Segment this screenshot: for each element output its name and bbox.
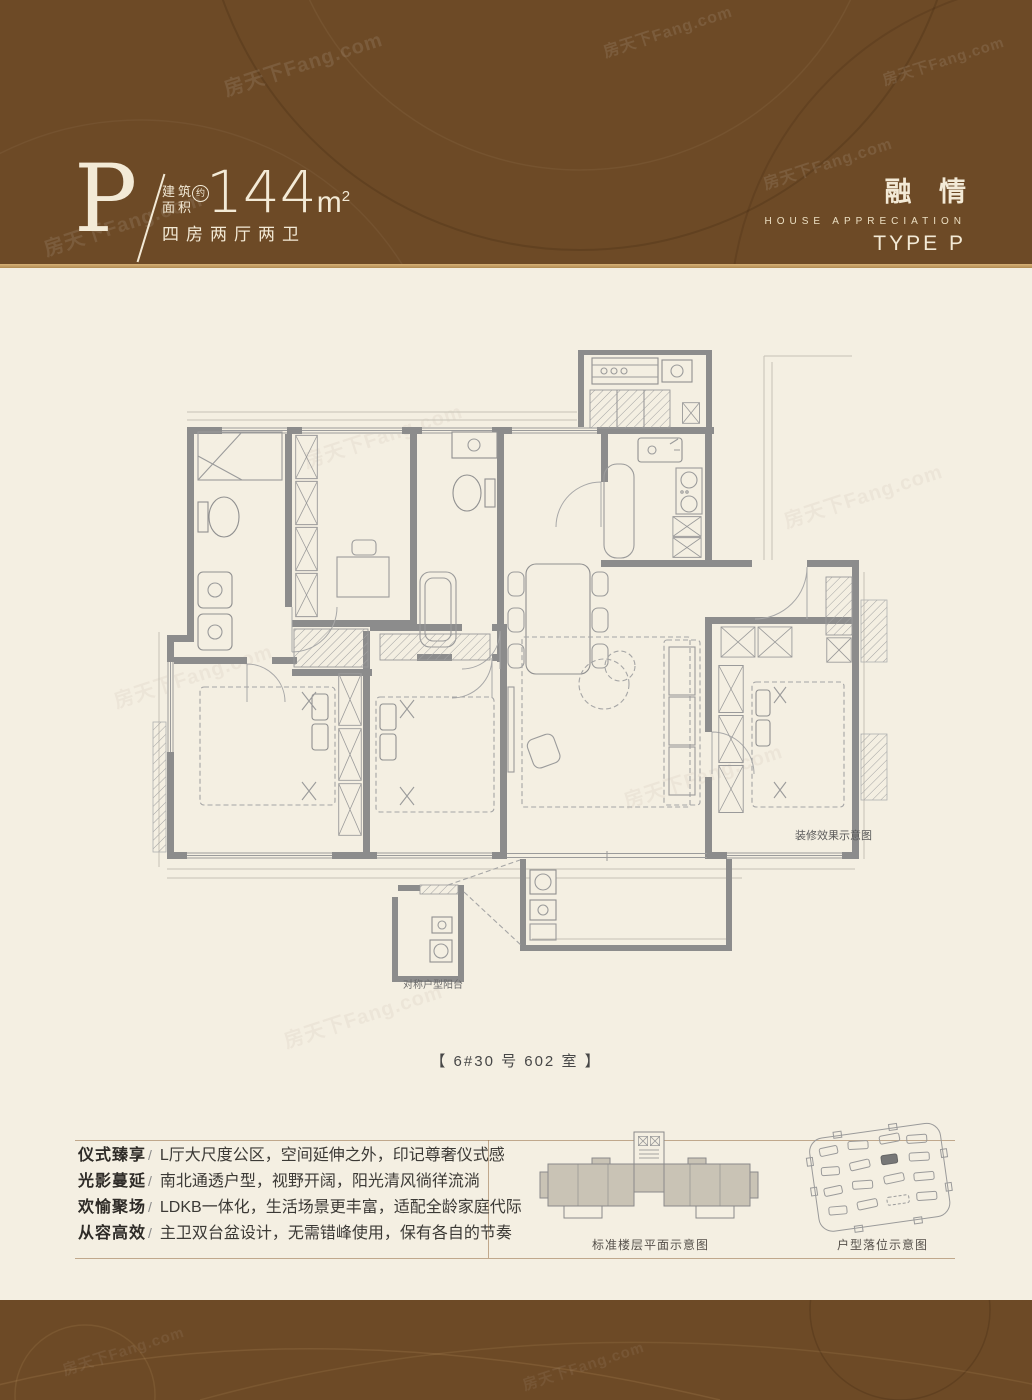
type-label: TYPE P — [764, 232, 966, 256]
feature-row: 仪式臻享 / L厅大尺度公区，空间延伸之外，印记尊奢仪式感 — [78, 1141, 478, 1167]
area-unit-sup: 2 — [342, 188, 350, 205]
room-layout-text: 四房两厅两卫 — [162, 220, 306, 245]
unit-type-letter: P — [74, 150, 137, 250]
floor-plan: .w{fill:#8c8c8c;} .tl{stroke:#9b9b9b;fil… — [152, 332, 902, 1012]
footer-band: 房天下Fang.com 房天下Fang.com 本宣传资料为要约邀请，不作为要约… — [0, 1300, 1032, 1400]
brand-name-en: HOUSE APPRECIATION — [764, 216, 966, 227]
area-value-row: 144m2 — [206, 163, 350, 221]
laundry-area — [590, 358, 699, 428]
walls — [167, 350, 859, 859]
study-bedroom — [296, 435, 389, 616]
header-band: 房天下Fang.com 房天下Fang.com 房天下Fang.com 房天下F… — [0, 0, 1032, 264]
feature-desc: 南北通透户型，视野开阔，阳光清风徜徉流淌 — [160, 1167, 480, 1191]
feature-separator: / — [148, 1147, 152, 1163]
kitchen — [604, 438, 702, 558]
area-label-line2: 面积 — [162, 200, 194, 216]
area-value: 144 — [206, 158, 317, 226]
feature-label: 仪式臻享 — [78, 1141, 146, 1165]
gold-divider — [0, 264, 1032, 268]
master-bathroom — [198, 432, 282, 650]
poster-page: 房天下Fang.com 房天下Fang.com 房天下Fang.com 房天下F… — [0, 0, 1032, 1400]
master-bedroom — [719, 627, 844, 813]
floor-plan-drawing: .w{fill:#8c8c8c;} .tl{stroke:#9b9b9b;fil… — [152, 332, 902, 1012]
balcony-note: 对称户型阳台 — [368, 976, 498, 991]
floor-diagram-caption: 标准楼层平面示意图 — [538, 1236, 763, 1253]
area-unit: m2 — [317, 186, 350, 219]
feature-separator: / — [148, 1199, 152, 1215]
feature-separator: / — [148, 1173, 152, 1189]
feature-label: 光影蔓延 — [78, 1167, 146, 1191]
feature-separator: / — [148, 1225, 152, 1241]
feature-desc: L厅大尺度公区，空间延伸之外，印记尊奢仪式感 — [160, 1141, 505, 1165]
feature-rule-bottom — [75, 1258, 955, 1259]
unit-caption: 【 6#30 号 602 室 】 — [0, 1050, 1032, 1071]
site-diagram-caption: 户型落位示意图 — [800, 1236, 965, 1253]
dining-area — [508, 564, 608, 674]
area-label: 建筑 面积 — [162, 184, 194, 216]
bedroom-left — [200, 674, 361, 836]
render-note: 装修效果示意图 — [795, 827, 872, 843]
second-bathroom — [420, 432, 497, 647]
standard-floor-diagram — [538, 1130, 763, 1234]
area-label-line1: 建筑 — [162, 184, 194, 200]
feature-label: 从容高效 — [78, 1219, 146, 1243]
hatched-ledges — [153, 600, 887, 852]
entry-foyer — [826, 577, 852, 662]
feature-desc: LDKB一体化，生活场景更丰富，适配全龄家庭代际 — [160, 1193, 522, 1217]
feature-row: 光影蔓延 / 南北通透户型，视野开阔，阳光清风徜徉流淌 — [78, 1167, 478, 1193]
brand-name-cn: 融 情 — [764, 170, 976, 209]
site-plan-diagram — [800, 1122, 965, 1236]
feature-label: 欢愉聚场 — [78, 1193, 146, 1217]
feature-row: 欢愉聚场 / LDKB一体化，生活场景更丰富，适配全龄家庭代际 — [78, 1193, 478, 1219]
living-balcony — [520, 859, 732, 951]
brand-block: 融 情 HOUSE APPRECIATION TYPE P — [764, 170, 966, 256]
feature-desc: 主卫双台盆设计，无需错峰使用，保有各自的节奏 — [160, 1219, 512, 1243]
corridor-closet — [294, 629, 368, 667]
feature-list: 仪式臻享 / L厅大尺度公区，空间延伸之外，印记尊奢仪式感 光影蔓延 / 南北通… — [78, 1141, 478, 1245]
feature-row: 从容高效 / 主卫双台盆设计，无需错峰使用，保有各自的节奏 — [78, 1219, 478, 1245]
